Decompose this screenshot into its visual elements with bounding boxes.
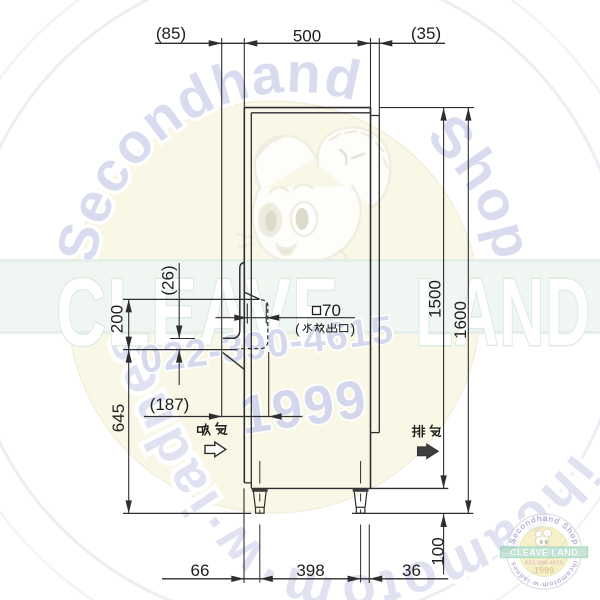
svg-text:(85): (85) bbox=[156, 24, 186, 43]
svg-text:(26): (26) bbox=[159, 265, 178, 295]
svg-text:1500: 1500 bbox=[426, 280, 445, 318]
svg-text:36: 36 bbox=[402, 561, 421, 580]
svg-text:1600: 1600 bbox=[451, 301, 470, 339]
svg-text:100: 100 bbox=[429, 537, 448, 565]
svg-text:): ) bbox=[351, 321, 356, 337]
svg-text:200: 200 bbox=[108, 305, 127, 333]
svg-text:(35): (35) bbox=[411, 24, 441, 43]
svg-text:(187): (187) bbox=[150, 395, 190, 414]
svg-text:500: 500 bbox=[293, 27, 321, 46]
svg-text:66: 66 bbox=[191, 561, 210, 580]
svg-text:(: ( bbox=[295, 321, 300, 337]
svg-text:70: 70 bbox=[322, 301, 341, 320]
svg-text:398: 398 bbox=[296, 561, 324, 580]
svg-text:645: 645 bbox=[109, 404, 128, 432]
